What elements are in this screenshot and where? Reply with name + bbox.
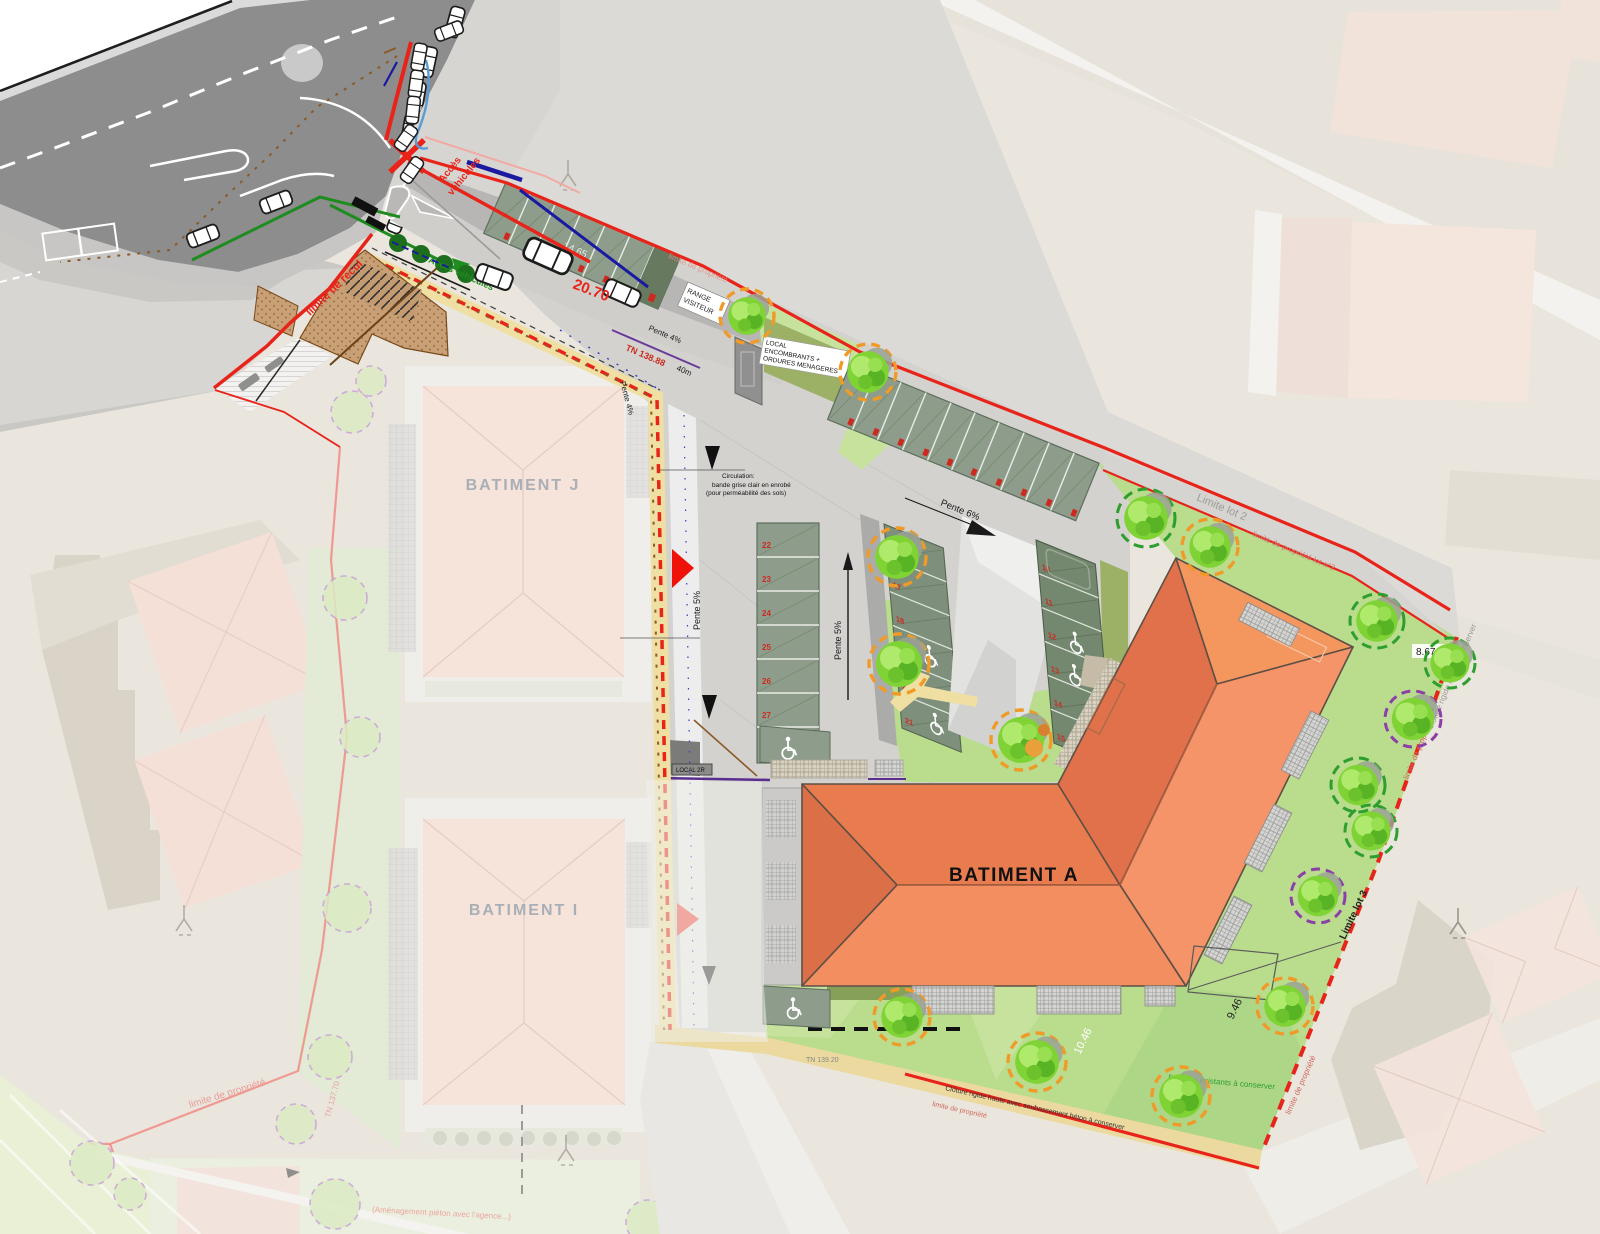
svg-text:Pente 5%: Pente 5% bbox=[833, 621, 843, 660]
svg-text:bande grise clair en enrobé: bande grise clair en enrobé bbox=[712, 482, 791, 489]
svg-text:(pour perméabilité des sols): (pour perméabilité des sols) bbox=[706, 490, 786, 497]
svg-text:24: 24 bbox=[762, 609, 771, 618]
svg-text:23: 23 bbox=[762, 575, 771, 584]
svg-text:LOCAL 2R: LOCAL 2R bbox=[676, 768, 705, 774]
svg-text:BATIMENT J: BATIMENT J bbox=[466, 477, 581, 494]
svg-text:Pente 5%: Pente 5% bbox=[692, 591, 702, 630]
svg-text:TN 139.20: TN 139.20 bbox=[806, 1057, 839, 1064]
svg-text:BATIMENT I: BATIMENT I bbox=[469, 902, 579, 919]
svg-text:22: 22 bbox=[762, 541, 771, 550]
svg-text:27: 27 bbox=[762, 711, 771, 720]
svg-text:Circulation:: Circulation: bbox=[722, 473, 755, 480]
svg-text:BATIMENT A: BATIMENT A bbox=[949, 865, 1079, 886]
svg-text:26: 26 bbox=[762, 677, 771, 686]
svg-text:25: 25 bbox=[762, 643, 771, 652]
